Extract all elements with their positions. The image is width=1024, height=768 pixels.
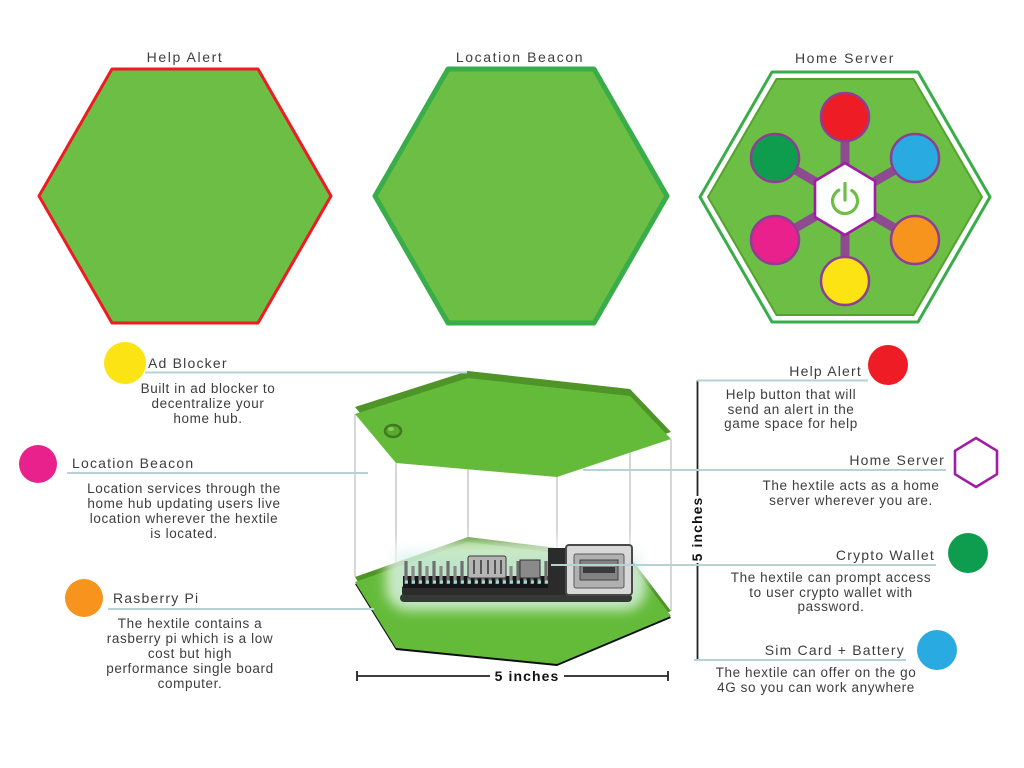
hextile-diagram: 5 inches 5 inches Help Alert Location Be… (0, 0, 1024, 768)
figure-home-server-hexagon (700, 72, 990, 322)
figure-location-beacon-hexagon (375, 69, 667, 323)
node-orange-circle (891, 216, 939, 264)
background-svg: 5 inches 5 inches (0, 0, 1024, 768)
node-magenta-circle (751, 216, 799, 264)
raspberry-pi-board (386, 540, 646, 610)
node-red-circle (821, 93, 869, 141)
height-dimension-label: 5 inches (689, 497, 705, 562)
figure-help-alert-hexagon (39, 69, 331, 323)
width-dimension-label: 5 inches (495, 668, 560, 684)
exploded-view (355, 371, 671, 666)
node-yellow-circle (821, 257, 869, 305)
lid-hole (385, 425, 401, 437)
node-green-circle (751, 134, 799, 182)
lid-tile (355, 371, 671, 477)
node-blue-circle (891, 134, 939, 182)
